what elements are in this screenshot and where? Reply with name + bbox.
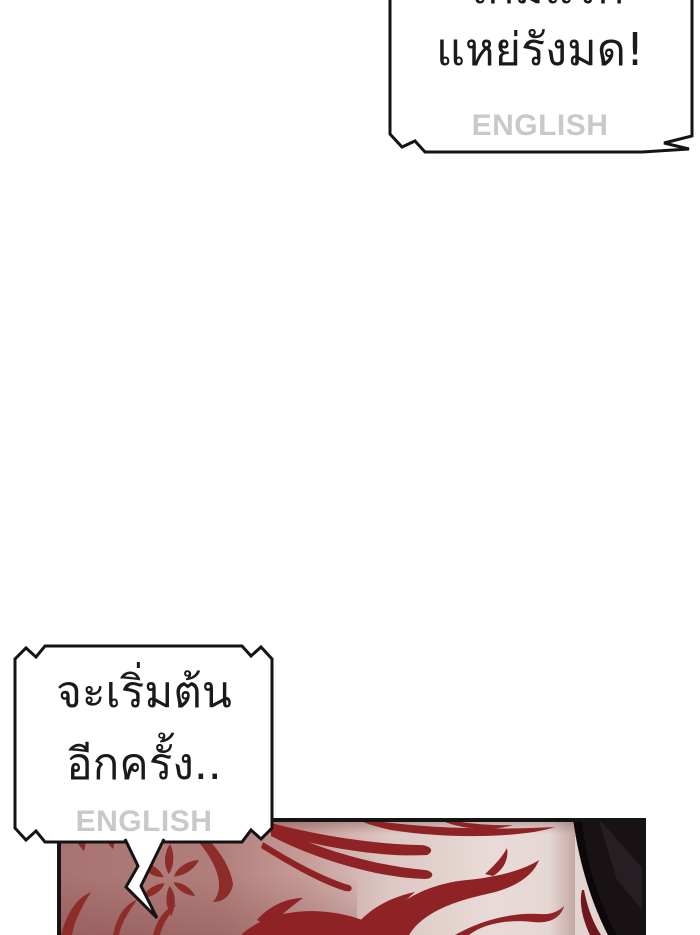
- hair-edge-shadow: [549, 818, 575, 935]
- translator-watermark-bottom: ENGLISH: [16, 806, 272, 838]
- comic-page: เกมแรก แหย่รังมด! ENGLISH จะเริ่มต้น อีก…: [0, 0, 700, 935]
- speech-text-bottom-line1: จะเริ่มต้น: [16, 664, 272, 722]
- translator-watermark-top: ENGLISH: [389, 110, 691, 142]
- speech-text-bottom-line2: อีกครั้ง..: [16, 736, 272, 794]
- speech-text-top-line1: เกมแรก: [397, 0, 699, 12]
- speech-text-top-line2: แหย่รังมด!: [389, 24, 691, 76]
- speech-tail-lightning: [125, 839, 164, 918]
